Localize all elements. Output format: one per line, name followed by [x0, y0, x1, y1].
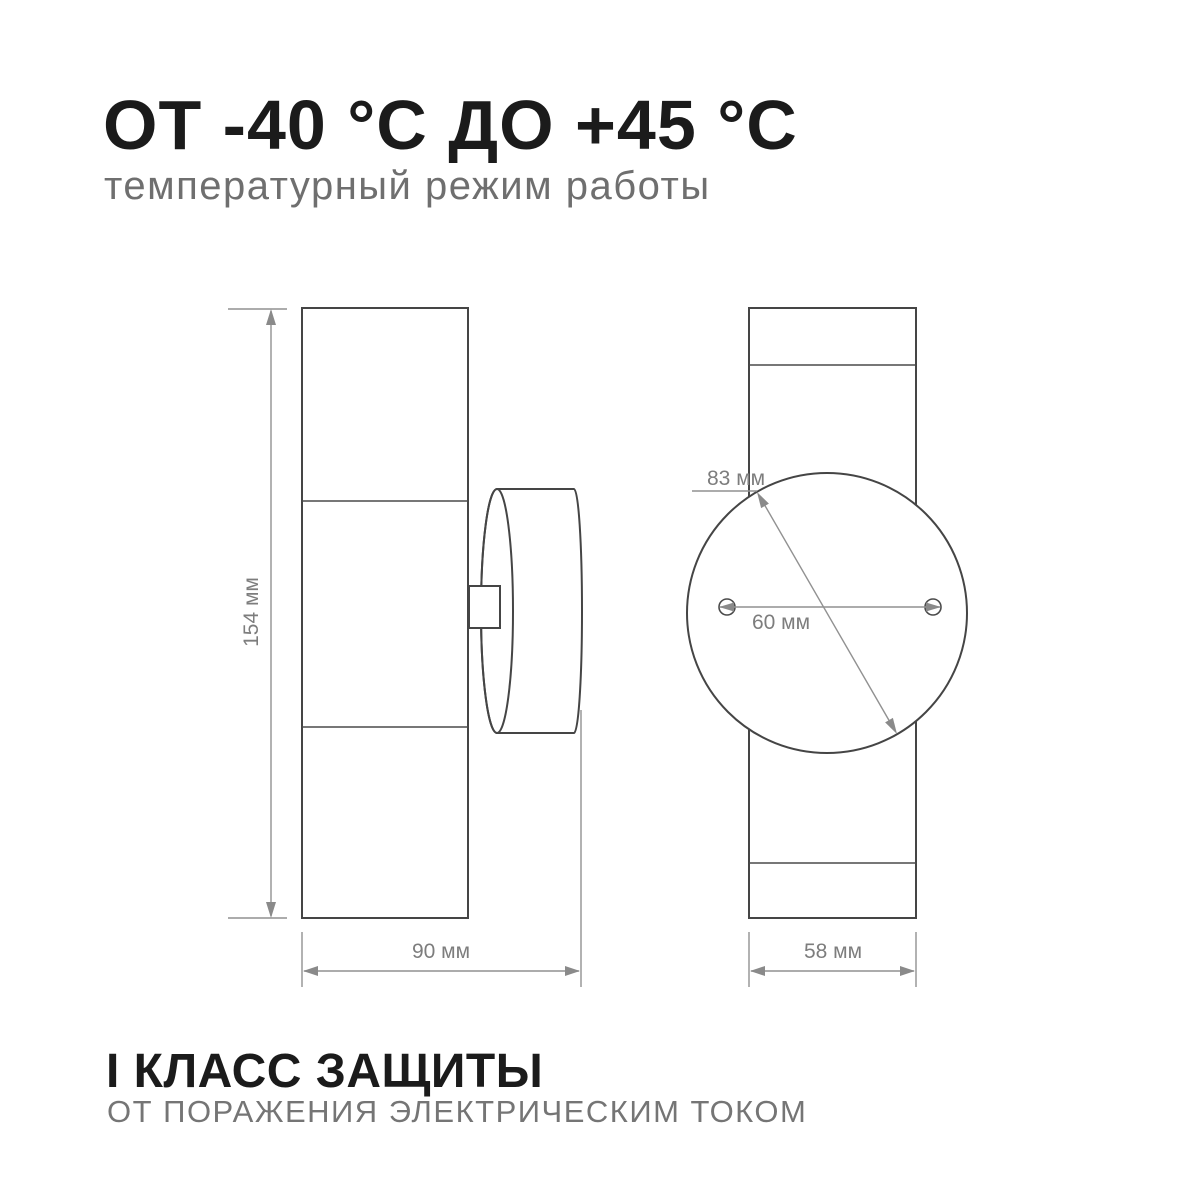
side-width-label: 58 мм	[804, 940, 862, 963]
spec-sheet: ОТ -40 °С ДО +45 °С температурный режим …	[0, 0, 1200, 1200]
height-dimension: 154 мм	[228, 309, 287, 918]
body-width-dimension: 90 мм	[302, 710, 581, 987]
arrowhead-right	[900, 966, 915, 976]
hole-spacing-label: 60 мм	[752, 611, 810, 634]
body-width-label: 90 мм	[412, 940, 470, 963]
plate-diameter-label: 83 мм	[707, 467, 765, 490]
side-view: 154 мм 90 мм	[228, 308, 582, 987]
front-view: 83 мм 60 мм 58 мм	[687, 308, 967, 987]
lamp-body-outline	[302, 308, 468, 918]
side-width-dimension: 58 мм	[749, 932, 916, 987]
arrowhead-left	[750, 966, 765, 976]
connector-block	[469, 586, 500, 628]
technical-drawing: 154 мм 90 мм	[0, 0, 1200, 1200]
protection-class-title: I КЛАСС ЗАЩИТЫ	[106, 1048, 543, 1096]
arrowhead-up	[266, 309, 276, 325]
protection-class-subtitle: ОТ ПОРАЖЕНИЯ ЭЛЕКТРИЧЕСКИМ ТОКОМ	[107, 1096, 807, 1127]
arrowhead-left	[303, 966, 318, 976]
height-label: 154 мм	[240, 577, 263, 647]
arrowhead-right	[565, 966, 580, 976]
arrowhead-down	[266, 902, 276, 918]
